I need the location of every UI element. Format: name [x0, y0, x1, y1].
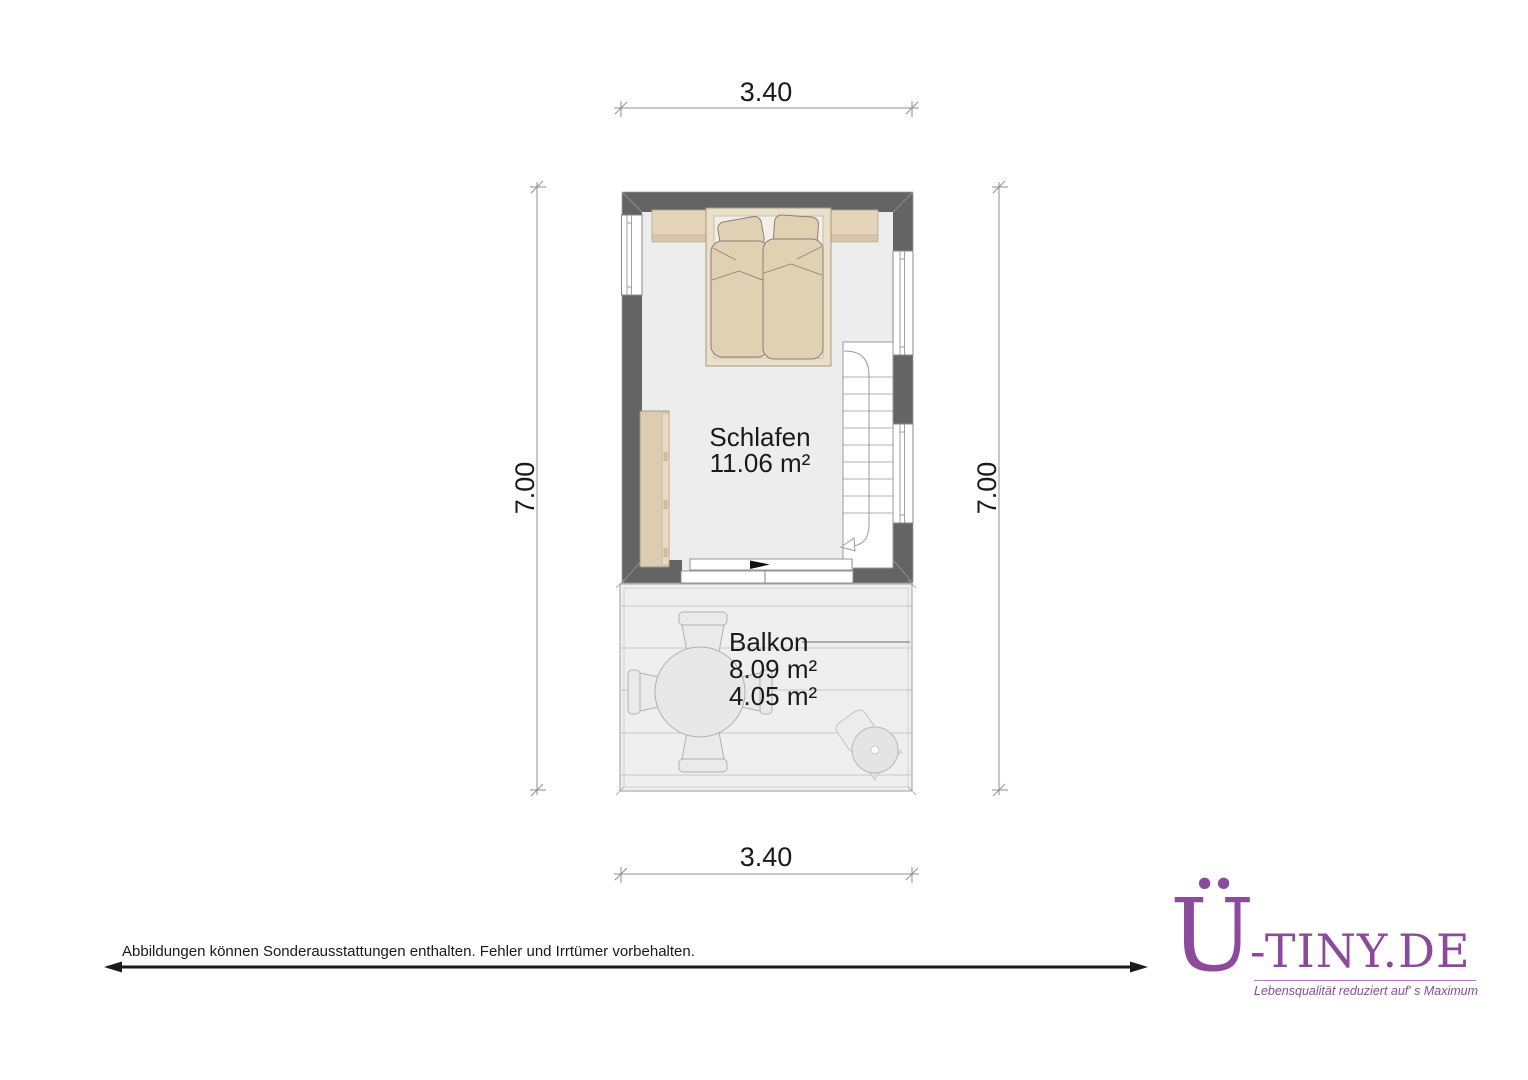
dim-width-bottom: 3.40	[740, 842, 793, 872]
footer-arrow-line	[104, 962, 1148, 973]
duvet-right	[763, 239, 823, 359]
dim-height-left: 7.00	[510, 462, 540, 515]
floor-plan-page: 3.40 3.40 7.00 7.00	[0, 0, 1528, 1080]
chair-bottom	[679, 732, 727, 772]
arrow-left-icon	[104, 962, 122, 973]
logo-wordmark: -TINY.DE	[1250, 928, 1471, 974]
window-left	[622, 215, 643, 295]
dim-height-right: 7.00	[972, 462, 1002, 515]
dim-width-top: 3.40	[740, 77, 793, 107]
logo-divider	[1254, 980, 1476, 981]
duvet-left	[711, 241, 769, 357]
staircase	[841, 342, 893, 568]
sliding-door	[681, 559, 853, 584]
room-area: 11.06 m²	[710, 448, 811, 478]
brand-logo: Ü -TINY.DE Lebensqualität reduziert auf'…	[1170, 880, 1510, 1015]
logo-initial: Ü	[1170, 876, 1254, 996]
wardrobe	[640, 411, 669, 567]
balcony-label: Balkon	[729, 627, 809, 657]
arrow-right-icon	[1130, 962, 1148, 973]
balcony-area-partial: 4.05 m²	[729, 681, 817, 711]
window-right-upper	[893, 251, 913, 355]
window-right-lower	[893, 424, 913, 523]
chair-top	[679, 612, 727, 652]
logo-tagline: Lebensqualität reduziert auf' s Maximum	[1254, 984, 1478, 998]
double-bed	[706, 208, 831, 366]
balcony-area-total: 8.09 m²	[729, 654, 817, 684]
disclaimer-text: Abbildungen können Sonderausstattungen e…	[122, 943, 695, 960]
